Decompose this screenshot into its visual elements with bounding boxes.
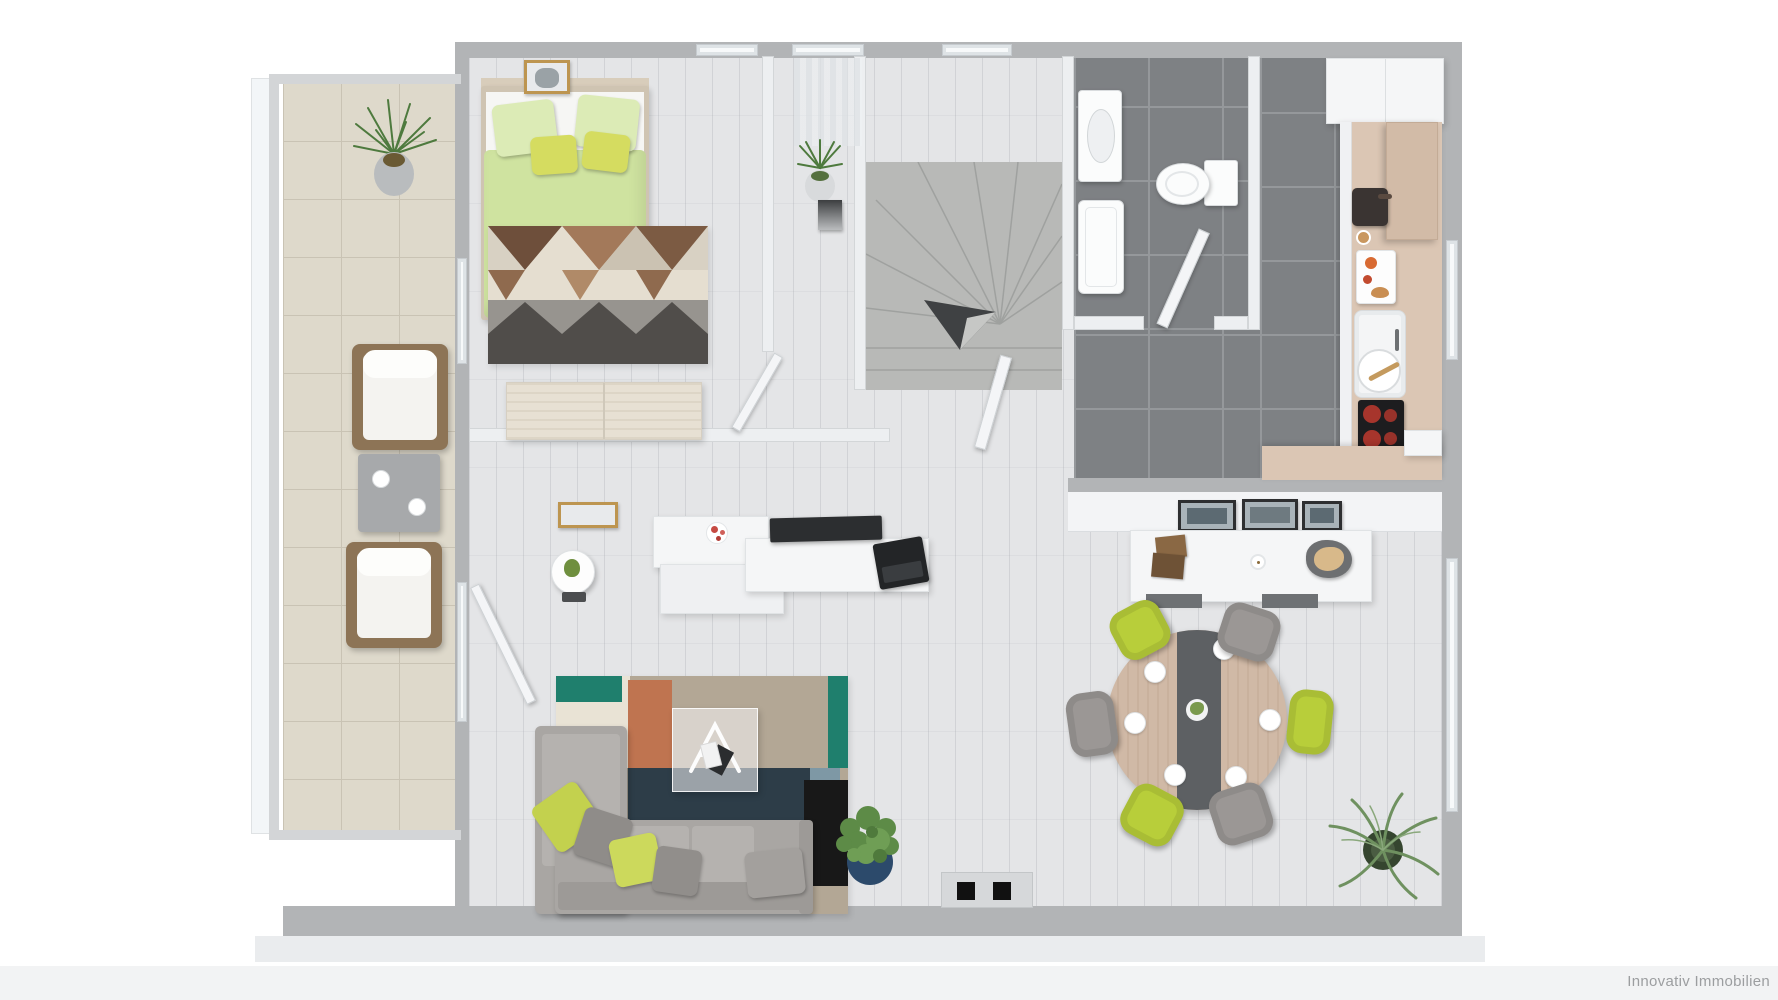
wall-bathroom-left: [1062, 56, 1074, 330]
kitchen-counter-edge: [1340, 122, 1352, 456]
plate-4: [1259, 709, 1281, 731]
balcony-railing-left: [269, 74, 279, 840]
red-flowers: [711, 526, 718, 533]
vanity-basin: [1087, 109, 1115, 163]
balcony-door-bedroom: [457, 258, 467, 364]
wall-bathroom-bottom-a: [1074, 316, 1144, 330]
kitchen-upper-cabinet: [1326, 58, 1444, 124]
tv-screen: [770, 516, 883, 543]
dining-wall-picture-3: [1302, 501, 1342, 531]
burner-4: [1384, 432, 1397, 445]
tomato-2: [1363, 275, 1372, 284]
window-stairwell-top: [942, 44, 1012, 56]
kitchen-tall-cabinet: [1386, 122, 1438, 240]
rug-teal-stripe-right: [828, 676, 848, 768]
dining-wall-picture-1: [1178, 500, 1236, 532]
balcony-armchair-1: [352, 344, 448, 450]
tomato-1: [1365, 257, 1377, 269]
armchair-backrest: [357, 548, 431, 576]
wall-kitchen-dining-divider: [1068, 478, 1442, 492]
palm-plant: [1322, 788, 1444, 908]
front-door: [941, 872, 1033, 908]
flower-vase-media: [706, 522, 728, 544]
hallway-plant: [790, 134, 850, 204]
plate-3: [1124, 712, 1146, 734]
balcony-armchair-2: [346, 542, 442, 648]
toilet-bowl: [1156, 163, 1210, 205]
photo-art: [1310, 508, 1334, 523]
shower-inner: [1085, 207, 1117, 287]
plate-5: [1164, 764, 1186, 786]
wall-bottom: [283, 906, 1462, 938]
candle-wick: [1257, 561, 1260, 564]
watermark: Innovativ Immobilien: [1627, 973, 1770, 990]
armchair-backrest: [363, 350, 437, 378]
sofa-pillow-gray-3: [744, 847, 806, 899]
decor-bowl: [1306, 540, 1352, 578]
rug-orange-block: [628, 680, 672, 768]
wall-left: [455, 42, 469, 916]
bathroom-vanity: [1078, 90, 1122, 182]
balcony-railing-bottom: [269, 830, 461, 840]
sideboard-front-dark-right: [1262, 594, 1318, 608]
photo-art: [1250, 507, 1290, 523]
bed-pillow-yellow-left: [530, 134, 579, 175]
dining-chair-gray-left: [1064, 689, 1120, 759]
bedroom-wall-picture: [524, 60, 570, 94]
bedroom-rug: [488, 226, 708, 364]
wood-box-2: [1151, 553, 1185, 580]
kitchen-sink: [1354, 310, 1406, 398]
centerpiece-flowers: [1190, 702, 1204, 715]
balcony-railing-top: [269, 74, 461, 84]
coffee-cup: [1356, 230, 1371, 245]
bedroom-dresser: [506, 382, 702, 440]
living-wall-picture: [558, 502, 618, 528]
wall-bedroom-right: [762, 56, 774, 352]
plate-1: [1144, 661, 1166, 683]
hallway-mirror: [818, 200, 842, 230]
table-centerpiece: [1186, 699, 1208, 721]
burner-1: [1363, 405, 1381, 423]
kitchen-floor-lower: [1074, 330, 1260, 484]
decor-candle: [1250, 554, 1266, 570]
mixing-bowl: [1357, 349, 1401, 393]
sheer-curtain: [794, 58, 862, 146]
picture-art: [535, 68, 559, 88]
decor-wood-boxes: [1152, 536, 1194, 580]
coffee-machine-handle: [1378, 194, 1392, 199]
sink-faucet: [1395, 329, 1399, 351]
cabinet-seam: [1385, 59, 1386, 123]
side-table: [551, 550, 595, 594]
dresser-seam: [603, 383, 605, 439]
page-bottom-strip: [0, 966, 1778, 1000]
cup-1: [372, 470, 390, 488]
front-door-glass-right: [993, 882, 1011, 900]
bathroom-shower-tray: [1078, 200, 1124, 294]
wall-bathroom-bottom-b: [1214, 316, 1248, 330]
potted-plant-blue: [820, 798, 920, 902]
balcony-plant: [348, 96, 440, 200]
laptop-keyboard: [881, 561, 923, 584]
dining-chair-lime-right: [1285, 688, 1335, 756]
coffee-table-glass: [672, 708, 758, 792]
wall-bathroom-right: [1248, 56, 1260, 330]
wooden-spoon: [1368, 361, 1400, 381]
bed-pillow-yellow-right: [581, 130, 631, 173]
laptop: [872, 536, 929, 590]
green-vase: [564, 559, 580, 577]
burner-2: [1384, 409, 1397, 422]
photo-art: [1187, 508, 1227, 524]
window-dining-right: [1446, 558, 1458, 812]
window-hall-top: [792, 44, 864, 56]
front-door-glass-left: [957, 882, 975, 900]
balcony-door-living: [457, 582, 467, 722]
dining-wall-picture-2: [1242, 499, 1298, 531]
toilet-seat: [1165, 171, 1199, 197]
balcony-table: [358, 454, 440, 532]
coffee-machine: [1352, 188, 1388, 226]
bowl-contents: [1314, 547, 1344, 571]
rug-teal-stripe-left: [556, 676, 622, 702]
kitchen-corner-cabinet: [1404, 430, 1442, 456]
floorplan-3d-render: Innovativ Immobilien: [0, 0, 1778, 1000]
sofa-pillow-gray-2: [651, 845, 703, 897]
cutting-board: [1356, 250, 1396, 304]
croissant: [1371, 287, 1389, 298]
magazine-stand: [673, 709, 759, 793]
foundation-strip: [255, 936, 1485, 962]
window-bedroom-top: [696, 44, 758, 56]
window-kitchen-right: [1446, 240, 1458, 360]
balcony-railing-glass: [251, 78, 271, 834]
side-table-leg: [562, 592, 586, 602]
cup-2: [408, 498, 426, 516]
staircase: [866, 162, 1062, 390]
